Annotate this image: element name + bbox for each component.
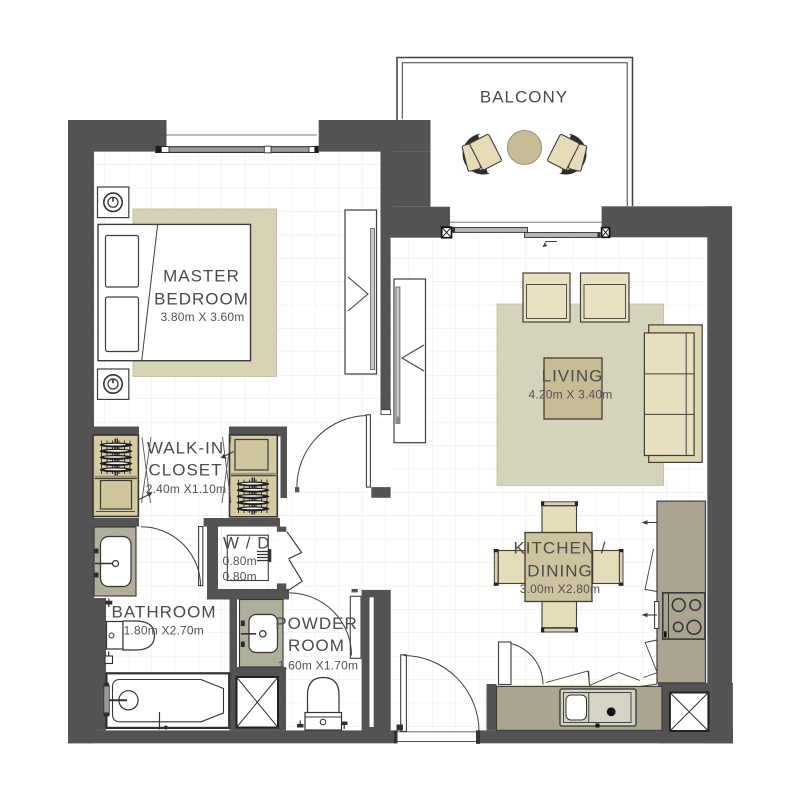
svg-text:KITCHEN /: KITCHEN /	[513, 539, 606, 558]
svg-text:3.80m X 3.60m: 3.80m X 3.60m	[161, 310, 245, 324]
svg-text:3.00m X2.80m: 3.00m X2.80m	[520, 582, 600, 596]
svg-text:DINING: DINING	[527, 562, 593, 581]
svg-text:LIVING: LIVING	[542, 367, 604, 386]
svg-text:1.80m X2.70m: 1.80m X2.70m	[124, 624, 204, 638]
svg-text:BEDROOM: BEDROOM	[154, 290, 249, 309]
svg-text:ROOM: ROOM	[288, 636, 345, 655]
svg-text:CLOSET: CLOSET	[148, 461, 222, 480]
svg-text:1.60m X1.70m: 1.60m X1.70m	[278, 659, 358, 673]
svg-text:POWDER: POWDER	[275, 614, 358, 633]
svg-text:0.80m: 0.80m	[223, 554, 257, 568]
svg-text:W / D: W / D	[223, 534, 271, 553]
svg-text:BATHROOM: BATHROOM	[112, 603, 217, 622]
svg-text:4.20m X 3.40m: 4.20m X 3.40m	[529, 388, 613, 402]
svg-text:WALK-IN: WALK-IN	[147, 439, 224, 458]
svg-text:BALCONY: BALCONY	[480, 88, 568, 107]
svg-text:MASTER: MASTER	[163, 267, 240, 286]
svg-text:2.40m X1.10m: 2.40m X1.10m	[146, 482, 226, 496]
svg-text:0.80m: 0.80m	[223, 570, 257, 584]
